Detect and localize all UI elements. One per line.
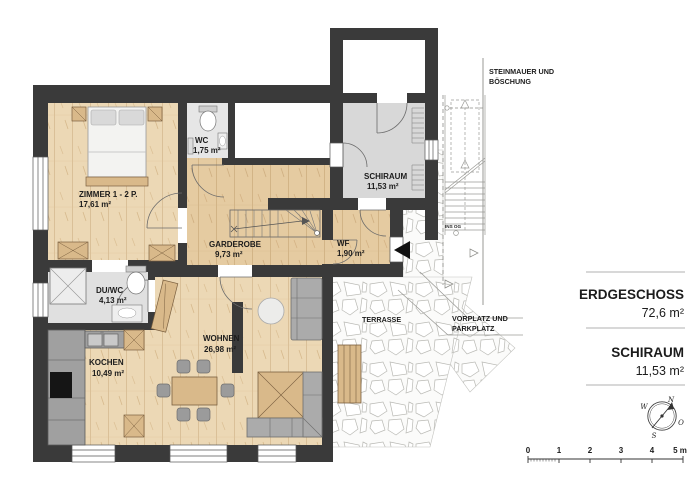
label-wohnen-name: WOHNEN <box>203 334 240 343</box>
label-terrasse: TERRASSE <box>362 315 401 324</box>
label-wf-name: WF <box>337 239 350 248</box>
window-wohnen-bottom-1 <box>170 445 227 462</box>
terrace-bench <box>338 345 361 403</box>
scale-tick-3: 3 <box>619 446 624 455</box>
label-vorplatz-1: VORPLATZ UND <box>452 314 508 323</box>
label-kochen-name: KOCHEN <box>89 358 124 367</box>
label-steinmauer-1: STEINMAUER UND <box>489 67 554 76</box>
label-garderobe-name: GARDEROBE <box>209 240 262 249</box>
duwc-toilet <box>126 266 146 294</box>
label-wf-area: 1,90 m² <box>337 249 365 258</box>
label-wc-area: 1,75 m² <box>193 146 221 155</box>
scale-tick-2: 2 <box>588 446 593 455</box>
nightstand-right <box>148 107 162 121</box>
label-ins-og: INS OG <box>445 224 462 229</box>
summary-annex-area: 11,53 m² <box>636 364 684 378</box>
slope-arrow-2 <box>470 249 478 257</box>
floorplan-drawing: ZIMMER 1 - 2 P. 17,61 m² WC 1,75 m² SCHI… <box>0 0 700 500</box>
window-kitchen-bottom <box>72 445 115 462</box>
nightstand-left <box>72 107 86 121</box>
label-schiraum-name: SCHIRAUM <box>364 172 407 181</box>
label-zimmer-area: 17,61 m² <box>79 200 111 209</box>
scale-end-label: 5 m <box>673 446 687 455</box>
wardrobe-hall <box>149 245 175 261</box>
label-vorplatz-2: PARKPLATZ <box>452 324 495 333</box>
summary-floor-label: ERDGESCHOSS <box>579 287 684 302</box>
shower <box>50 268 86 304</box>
wc-toilet <box>199 106 217 131</box>
duwc-washbasin <box>112 305 142 322</box>
sofa-wall <box>291 278 322 340</box>
summary-panel: ERDGESCHOSS 72,6 m² SCHIRAUM 11,53 m² <box>579 272 685 385</box>
round-rug <box>258 298 284 324</box>
window-bedroom-left <box>33 157 48 230</box>
label-wohnen-area: 26,98 m² <box>204 345 236 354</box>
label-schiraum-area: 11,53 m² <box>367 182 399 191</box>
double-bed <box>86 107 148 186</box>
external-staircase <box>445 95 485 235</box>
label-duwc-area: 4,13 m² <box>99 296 127 305</box>
storage-room-floor <box>235 103 330 158</box>
wf-door-floor <box>322 240 333 264</box>
compass-n: N <box>667 396 675 404</box>
label-zimmer-name: ZIMMER 1 - 2 P. <box>79 190 138 199</box>
scale-tick-0: 0 <box>526 446 531 455</box>
scale-tick-1: 1 <box>557 446 562 455</box>
window-duwc-left <box>33 283 48 317</box>
interior-staircase <box>230 210 320 237</box>
wardrobe-bedroom <box>58 242 88 259</box>
coffee-table <box>258 372 304 418</box>
compass-s: S <box>652 432 657 440</box>
window-schiraum-right <box>425 140 438 160</box>
label-kochen-area: 10,49 m² <box>92 369 124 378</box>
scale-tick-4: 4 <box>650 446 655 455</box>
compass-w: W <box>640 403 648 411</box>
label-steinmauer-2: BÖSCHUNG <box>489 77 531 86</box>
kitchen-cabinet-upper <box>124 330 144 350</box>
annex-open-area <box>343 40 425 93</box>
summary-floor-area: 72,6 m² <box>642 306 684 320</box>
window-wohnen-bottom-2 <box>258 445 296 462</box>
scale-bar: 0 1 2 3 4 5 m <box>526 446 687 463</box>
compass-o: O <box>678 419 684 427</box>
label-duwc-name: DU/WC <box>96 286 123 295</box>
summary-annex-label: SCHIRAUM <box>611 345 684 360</box>
compass-rose: N O S W <box>640 396 684 440</box>
floorplan-page: ZIMMER 1 - 2 P. 17,61 m² WC 1,75 m² SCHI… <box>0 0 700 500</box>
survey-point <box>445 106 449 110</box>
label-garderobe-area: 9,73 m² <box>215 250 243 259</box>
schiraum-side-opening <box>330 143 343 167</box>
kitchen-cabinet-lower <box>124 415 144 437</box>
label-wc-name: WC <box>195 136 209 145</box>
